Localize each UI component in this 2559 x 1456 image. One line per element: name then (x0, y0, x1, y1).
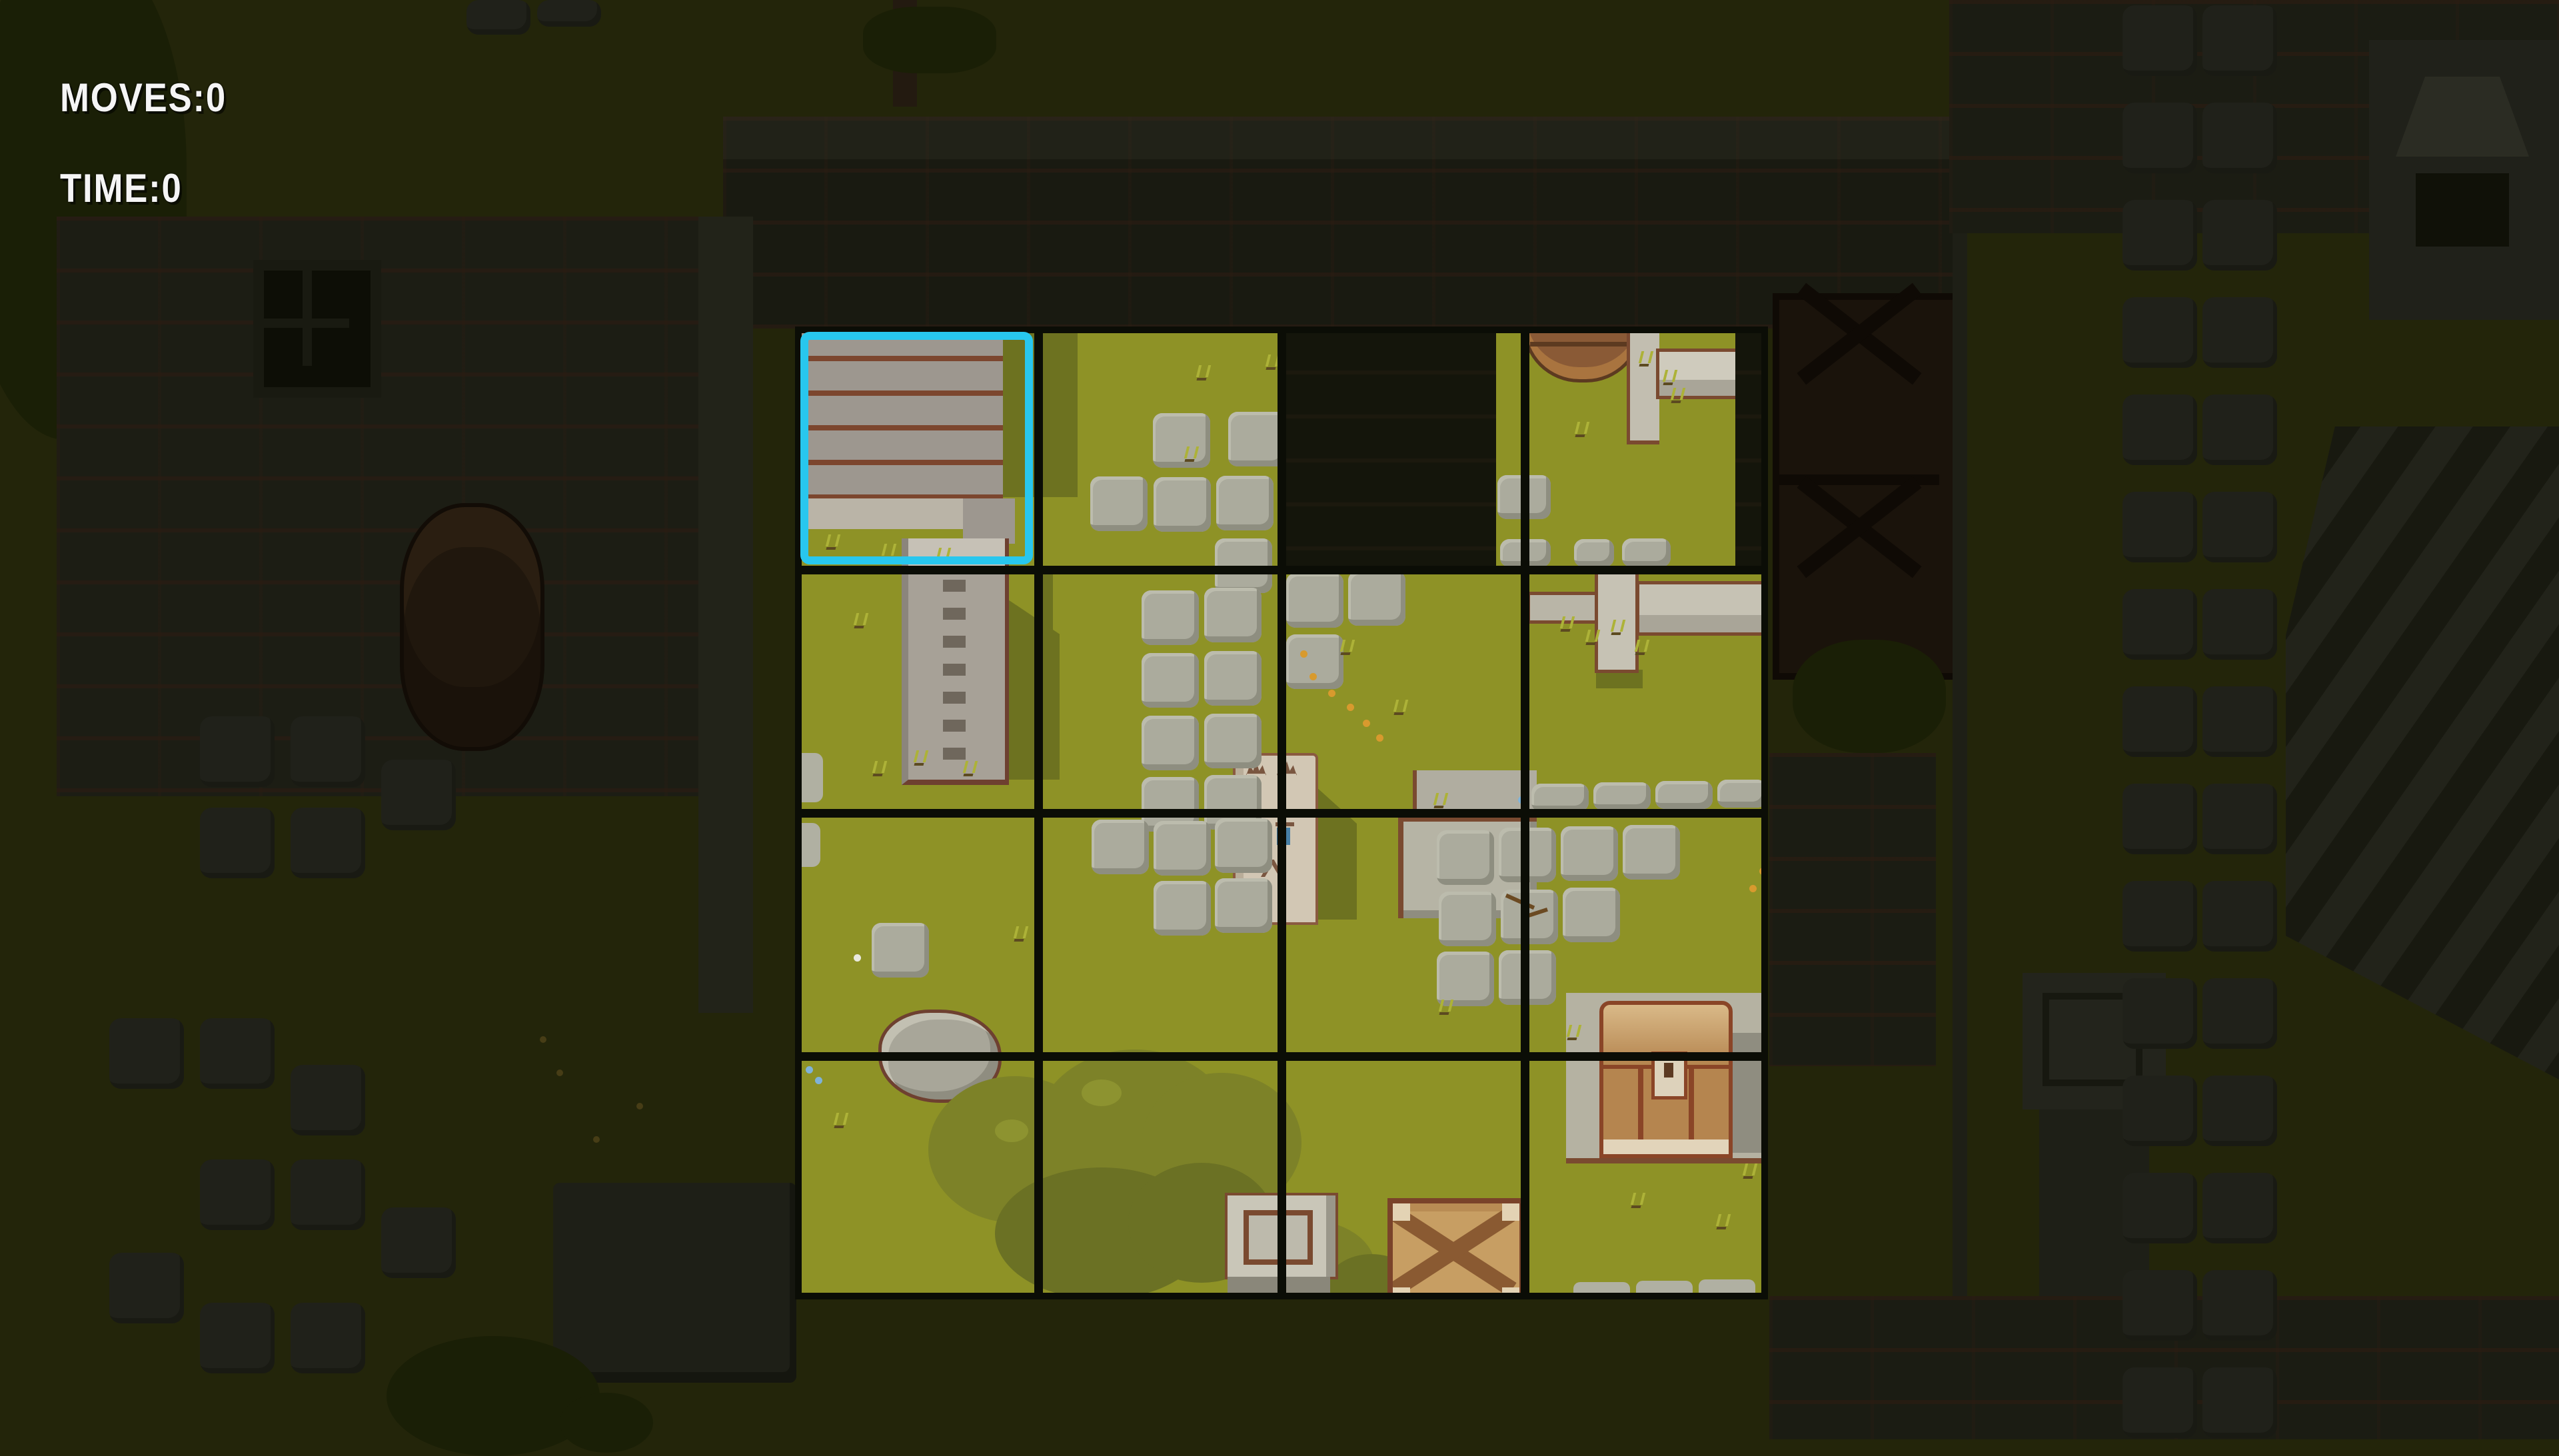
dim-paver (2202, 492, 2277, 562)
tile-r0c3[interactable] (1494, 327, 1737, 570)
dim-paver (2202, 1173, 2277, 1243)
dim-paver (2123, 1173, 2197, 1243)
dim-paver (2202, 1076, 2277, 1146)
dim-flower (540, 1036, 546, 1043)
dim-paver (2123, 297, 2197, 368)
tile-r3c2[interactable] (1281, 1056, 1525, 1299)
dim-paver (2123, 686, 2197, 757)
tile-r1c1[interactable] (1038, 570, 1281, 813)
tile-r3c1[interactable] (1038, 1056, 1281, 1299)
tile-r2c0[interactable] (795, 813, 1038, 1056)
dim-paver (2202, 394, 2277, 465)
dim-flower (556, 1070, 563, 1076)
tile-r0c1[interactable] (1038, 327, 1281, 570)
dim-paver (2123, 1270, 2197, 1341)
dim-paver (200, 1159, 275, 1230)
tile-r2c3[interactable] (1525, 813, 1768, 1056)
dim-paver (2123, 200, 2197, 271)
dim-paver (109, 1253, 184, 1323)
dim-paver (291, 1065, 365, 1135)
puzzle-board[interactable] (795, 327, 1768, 1299)
dim-paver (2202, 1367, 2277, 1438)
dim-paver (2202, 784, 2277, 854)
dim-paver (291, 1303, 365, 1373)
tile-r0c0[interactable] (795, 327, 1038, 570)
dim-paver (2123, 5, 2197, 76)
dim-paver (200, 808, 275, 878)
dim-paver (2123, 1367, 2197, 1438)
dim-paver (2123, 589, 2197, 660)
dim-paver (291, 716, 365, 787)
dim-paver (200, 1303, 275, 1373)
empty-slot (1281, 327, 1525, 570)
tile-r1c2[interactable] (1281, 570, 1525, 813)
dim-paver (2123, 394, 2197, 465)
dim-paver (291, 808, 365, 878)
time-counter: TIME:0 (60, 165, 183, 211)
dim-paver (2123, 784, 2197, 854)
dim-paver (2123, 1076, 2197, 1146)
dim-paver (109, 1018, 184, 1089)
dim-paver (2202, 200, 2277, 271)
dim-paver (2202, 589, 2277, 660)
dim-paver (291, 1159, 365, 1230)
dim-paver (2202, 978, 2277, 1049)
dim-paver (200, 1018, 275, 1089)
dim-paver (200, 716, 275, 787)
dim-paver (2123, 492, 2197, 562)
dim-paver (2123, 881, 2197, 952)
tile-r2c1[interactable] (1038, 813, 1281, 1056)
dim-paver (466, 0, 530, 35)
tile-r2c2[interactable] (1281, 813, 1525, 1056)
dim-paver (2123, 103, 2197, 173)
dim-paver (381, 1207, 456, 1278)
dim-flower (593, 1136, 600, 1143)
dim-paver (2123, 978, 2197, 1049)
dim-paver (2202, 1270, 2277, 1341)
tile-r1c3[interactable] (1525, 570, 1768, 813)
dim-paver (2202, 5, 2277, 76)
dim-paver (2202, 881, 2277, 952)
dim-paver (2202, 686, 2277, 757)
dim-paver (2202, 103, 2277, 173)
dim-paver (537, 0, 601, 27)
moves-counter: MOVES:0 (60, 75, 227, 121)
dim-paver (381, 760, 456, 830)
tile-r1c0[interactable] (795, 570, 1038, 813)
dim-flower (636, 1103, 643, 1109)
dim-paver (2202, 297, 2277, 368)
tile-r3c0[interactable] (795, 1056, 1038, 1299)
tile-r3c3[interactable] (1525, 1056, 1768, 1299)
